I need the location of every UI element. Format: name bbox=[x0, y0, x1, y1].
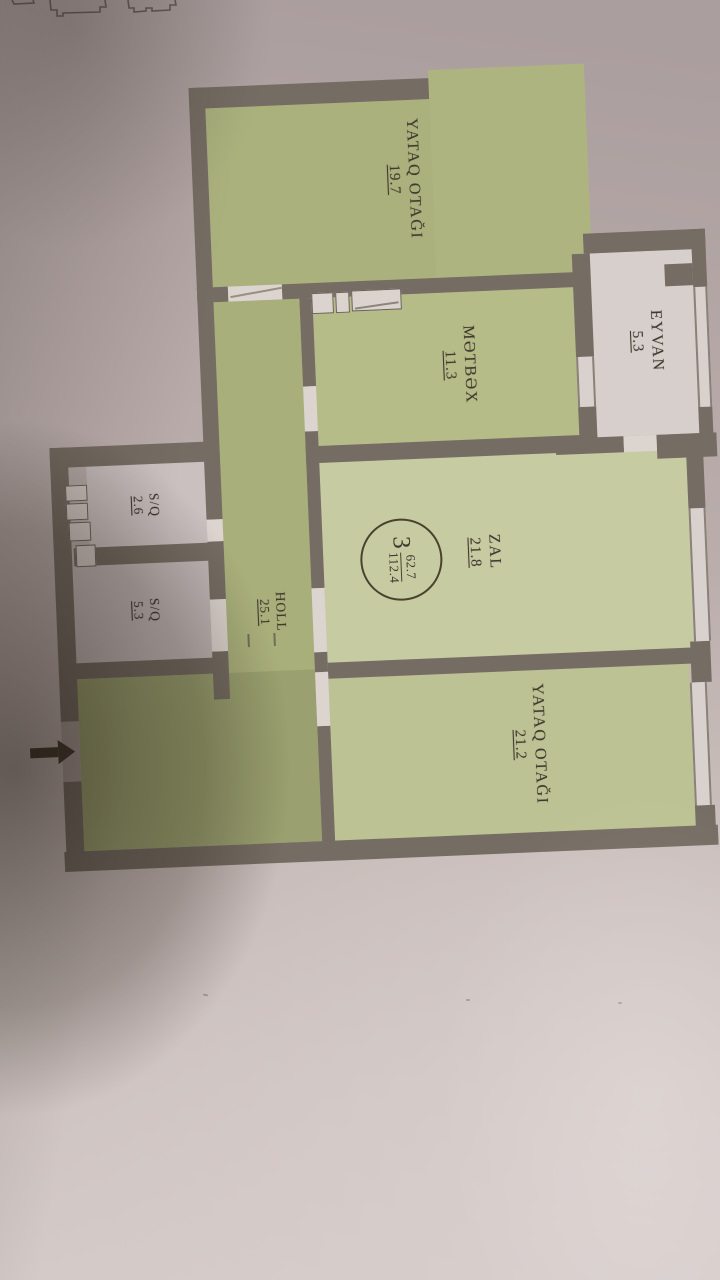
room-area: 25.1 bbox=[255, 592, 273, 633]
total-area-value: 112.4 bbox=[386, 552, 402, 584]
living-area-value: 62.7 bbox=[400, 552, 418, 581]
vent-shaft bbox=[65, 485, 88, 502]
room-label-balcony: EYVAN 5.3 bbox=[627, 309, 667, 372]
room-name: HOLL bbox=[271, 591, 289, 632]
kitchen-balcony-window bbox=[576, 356, 596, 407]
wall-segment bbox=[691, 229, 707, 288]
living-room-door bbox=[312, 588, 328, 652]
room-area: 5.3 bbox=[130, 598, 147, 623]
sanitary-small-door bbox=[207, 519, 224, 542]
room-area: 21.8 bbox=[466, 534, 486, 571]
area-fraction: 62.7 112.4 bbox=[386, 551, 418, 584]
room-label-hall: HOLL 25.1 bbox=[255, 591, 289, 632]
room-label-bedroom-bottom: YATAQ OTAĞI 21.2 bbox=[509, 683, 552, 806]
room-label-living: ZAL 21.8 bbox=[466, 533, 505, 570]
room-hall-lower-fill bbox=[77, 669, 322, 851]
floor-plan-photo: YATAQ OTAĞI 19.7 EYVAN 5.3 MƏTBƏX 11.3 Z… bbox=[0, 0, 720, 1280]
kitchen-fixture bbox=[311, 292, 334, 314]
sanitary-large-door bbox=[210, 599, 228, 652]
kitchen-fixture bbox=[335, 292, 350, 314]
room-label-bedroom-top: YATAQ OTAĞI 19.7 bbox=[383, 118, 426, 241]
dust-speck bbox=[466, 999, 470, 1001]
vent-shaft bbox=[66, 503, 89, 521]
room-label-kitchen: MƏTBƏX 11.3 bbox=[440, 325, 481, 405]
plan-sheet: YATAQ OTAĞI 19.7 EYVAN 5.3 MƏTBƏX 11.3 Z… bbox=[0, 0, 720, 1280]
room-bedroom-top-fill bbox=[428, 64, 592, 260]
vent-shaft bbox=[76, 544, 97, 567]
entrance-arrow-shaft bbox=[30, 747, 58, 758]
room-name: EYVAN bbox=[646, 309, 668, 372]
wall-segment bbox=[197, 287, 229, 303]
room-area: 2.6 bbox=[129, 493, 146, 518]
room-label-sanitary-small: S/Q 2.6 bbox=[129, 493, 162, 518]
kitchen-door bbox=[303, 386, 318, 432]
bedroom-bottom-door bbox=[315, 672, 330, 726]
room-name: ZAL bbox=[484, 533, 505, 570]
kitchen-fixture bbox=[351, 288, 402, 311]
room-name: S/Q bbox=[145, 493, 162, 518]
room-name: MƏTBƏX bbox=[458, 325, 481, 405]
wall-segment bbox=[207, 541, 225, 600]
wall-segment bbox=[63, 781, 84, 860]
vent-shaft bbox=[69, 522, 92, 542]
room-label-sanitary-large: S/Q 5.3 bbox=[130, 598, 163, 623]
balcony-door bbox=[623, 435, 657, 452]
balcony-railing-block bbox=[664, 263, 693, 286]
entrance-arrow-head bbox=[58, 739, 76, 764]
wall-segment bbox=[314, 652, 328, 673]
room-name: S/Q bbox=[145, 598, 162, 623]
wall-segment bbox=[686, 442, 706, 509]
rooms-count: 3 bbox=[386, 536, 414, 550]
room-hall-corridor-fill bbox=[212, 299, 315, 692]
wall-segment bbox=[555, 436, 624, 455]
